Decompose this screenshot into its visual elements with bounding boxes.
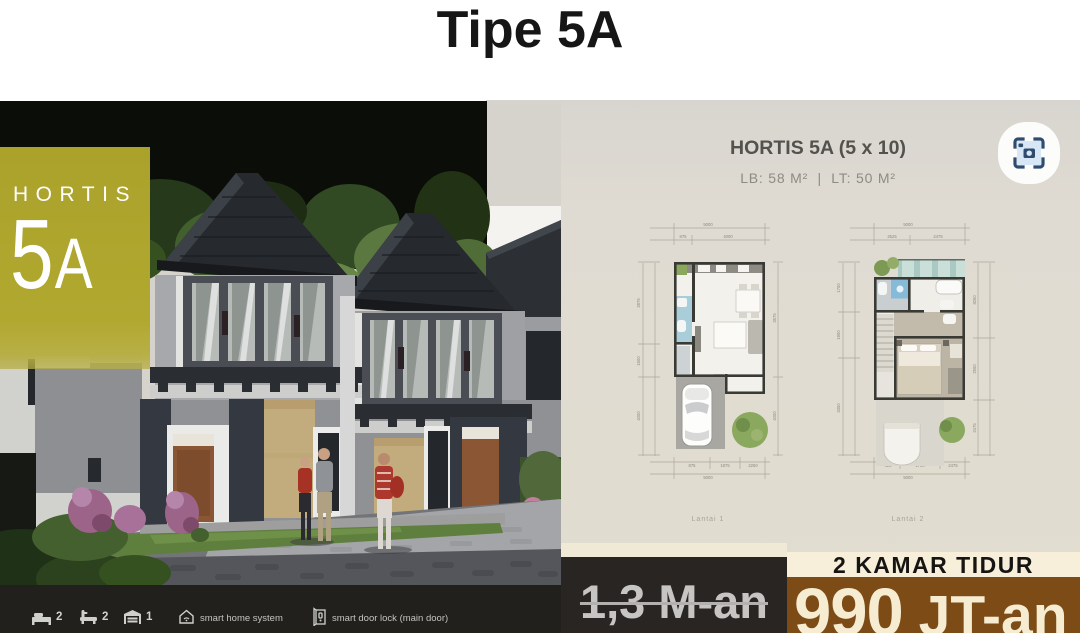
svg-text:1900: 1900 [836, 330, 841, 340]
svg-text:5000: 5000 [903, 222, 913, 227]
svg-text:5000: 5000 [703, 475, 713, 480]
svg-text:2475: 2475 [972, 423, 977, 433]
svg-text:5000: 5000 [703, 222, 713, 227]
svg-text:5: 5 [10, 200, 54, 309]
svg-text:1500: 1500 [636, 356, 641, 366]
svg-text:2475: 2475 [948, 463, 958, 468]
svg-text:2250: 2250 [748, 463, 758, 468]
svg-text:Lantai 2: Lantai 2 [892, 516, 925, 523]
svg-text:2525: 2525 [887, 234, 897, 239]
svg-text:3575: 3575 [772, 313, 777, 323]
svg-text:4000: 4000 [636, 411, 641, 421]
svg-text:1750: 1750 [836, 283, 841, 293]
svg-text:5000: 5000 [903, 475, 913, 480]
svg-text:875: 875 [680, 234, 688, 239]
svg-text:2550: 2550 [972, 364, 977, 374]
svg-text:A: A [55, 224, 93, 304]
svg-text:4000: 4000 [723, 234, 733, 239]
svg-text:3350: 3350 [836, 403, 841, 413]
svg-text:2475: 2475 [933, 234, 943, 239]
svg-text:3050: 3050 [972, 295, 977, 305]
svg-text:4000: 4000 [772, 411, 777, 421]
svg-text:Lantai 1: Lantai 1 [692, 516, 725, 523]
svg-text:2875: 2875 [636, 298, 641, 308]
svg-text:875: 875 [689, 463, 697, 468]
svg-text:1875: 1875 [720, 463, 730, 468]
